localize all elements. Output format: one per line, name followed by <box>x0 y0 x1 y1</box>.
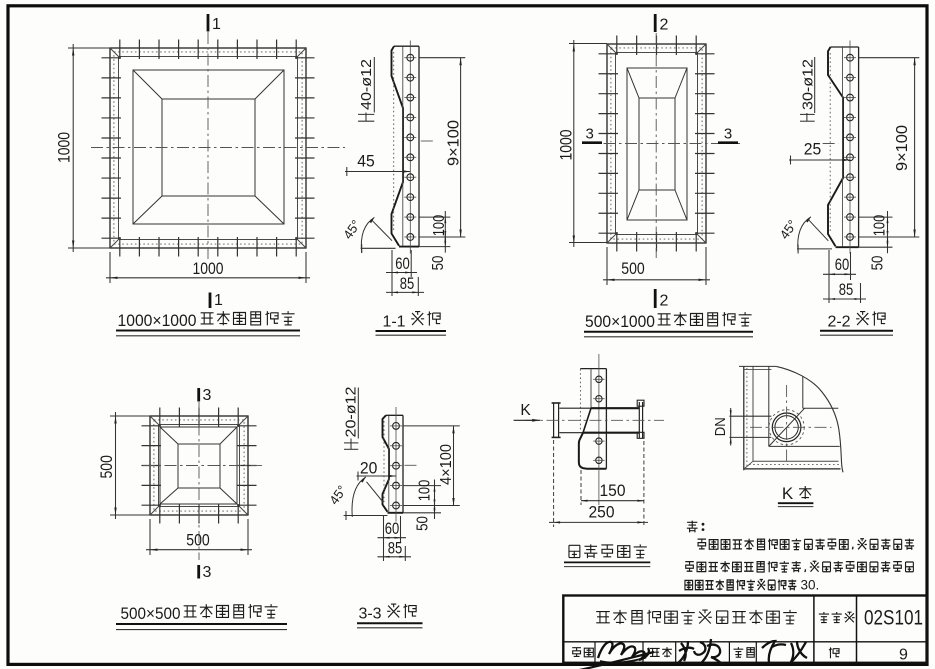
svg-text:1: 1 <box>212 16 221 33</box>
svg-text:2-2: 2-2 <box>827 313 850 330</box>
svg-text:3: 3 <box>724 125 732 142</box>
svg-text:K: K <box>782 484 794 503</box>
svg-text:40-ø12: 40-ø12 <box>358 59 375 110</box>
svg-text:150: 150 <box>600 482 626 500</box>
svg-text:85: 85 <box>400 275 415 293</box>
svg-text:1000×1000: 1000×1000 <box>118 311 197 330</box>
svg-text:500×1000: 500×1000 <box>585 312 655 331</box>
svg-text:9×100: 9×100 <box>894 125 911 171</box>
svg-text:1000: 1000 <box>193 259 224 278</box>
svg-text:20: 20 <box>360 459 378 478</box>
svg-text:1-1: 1-1 <box>382 313 405 330</box>
svg-text:02S101: 02S101 <box>864 607 923 630</box>
svg-text:50: 50 <box>415 516 432 531</box>
svg-text:85: 85 <box>388 540 403 558</box>
svg-text:2: 2 <box>660 17 669 34</box>
svg-text:60: 60 <box>835 256 850 274</box>
svg-text:250: 250 <box>589 504 615 522</box>
svg-text:1000: 1000 <box>557 130 576 161</box>
svg-text:85: 85 <box>839 281 854 299</box>
svg-text:K: K <box>520 402 531 419</box>
svg-text:500: 500 <box>186 531 210 550</box>
svg-text:3-3: 3-3 <box>358 606 381 623</box>
svg-text:3: 3 <box>586 125 594 142</box>
svg-text:DN: DN <box>712 417 729 436</box>
svg-text:500×500: 500×500 <box>121 604 181 623</box>
svg-text:60: 60 <box>385 520 400 538</box>
svg-text:60: 60 <box>395 255 410 273</box>
svg-text:9×100: 9×100 <box>445 120 462 166</box>
svg-text:4×100: 4×100 <box>438 444 455 485</box>
svg-text:45: 45 <box>357 152 375 171</box>
svg-text:30.: 30. <box>800 578 819 593</box>
svg-text:500: 500 <box>621 259 645 278</box>
svg-text:9: 9 <box>899 647 908 664</box>
svg-text:1: 1 <box>214 292 223 309</box>
svg-text:2: 2 <box>660 293 669 310</box>
svg-text:30-ø12: 30-ø12 <box>800 59 817 110</box>
svg-text:100: 100 <box>417 480 434 502</box>
svg-text:500: 500 <box>97 455 116 479</box>
svg-text:1000: 1000 <box>55 132 74 163</box>
svg-text:3: 3 <box>203 564 212 581</box>
svg-text:20-ø12: 20-ø12 <box>342 387 359 438</box>
svg-text:50: 50 <box>430 256 447 271</box>
svg-text:100: 100 <box>872 215 889 237</box>
svg-text:50: 50 <box>870 256 887 271</box>
svg-text:3: 3 <box>203 387 212 404</box>
svg-text:25: 25 <box>804 140 822 159</box>
